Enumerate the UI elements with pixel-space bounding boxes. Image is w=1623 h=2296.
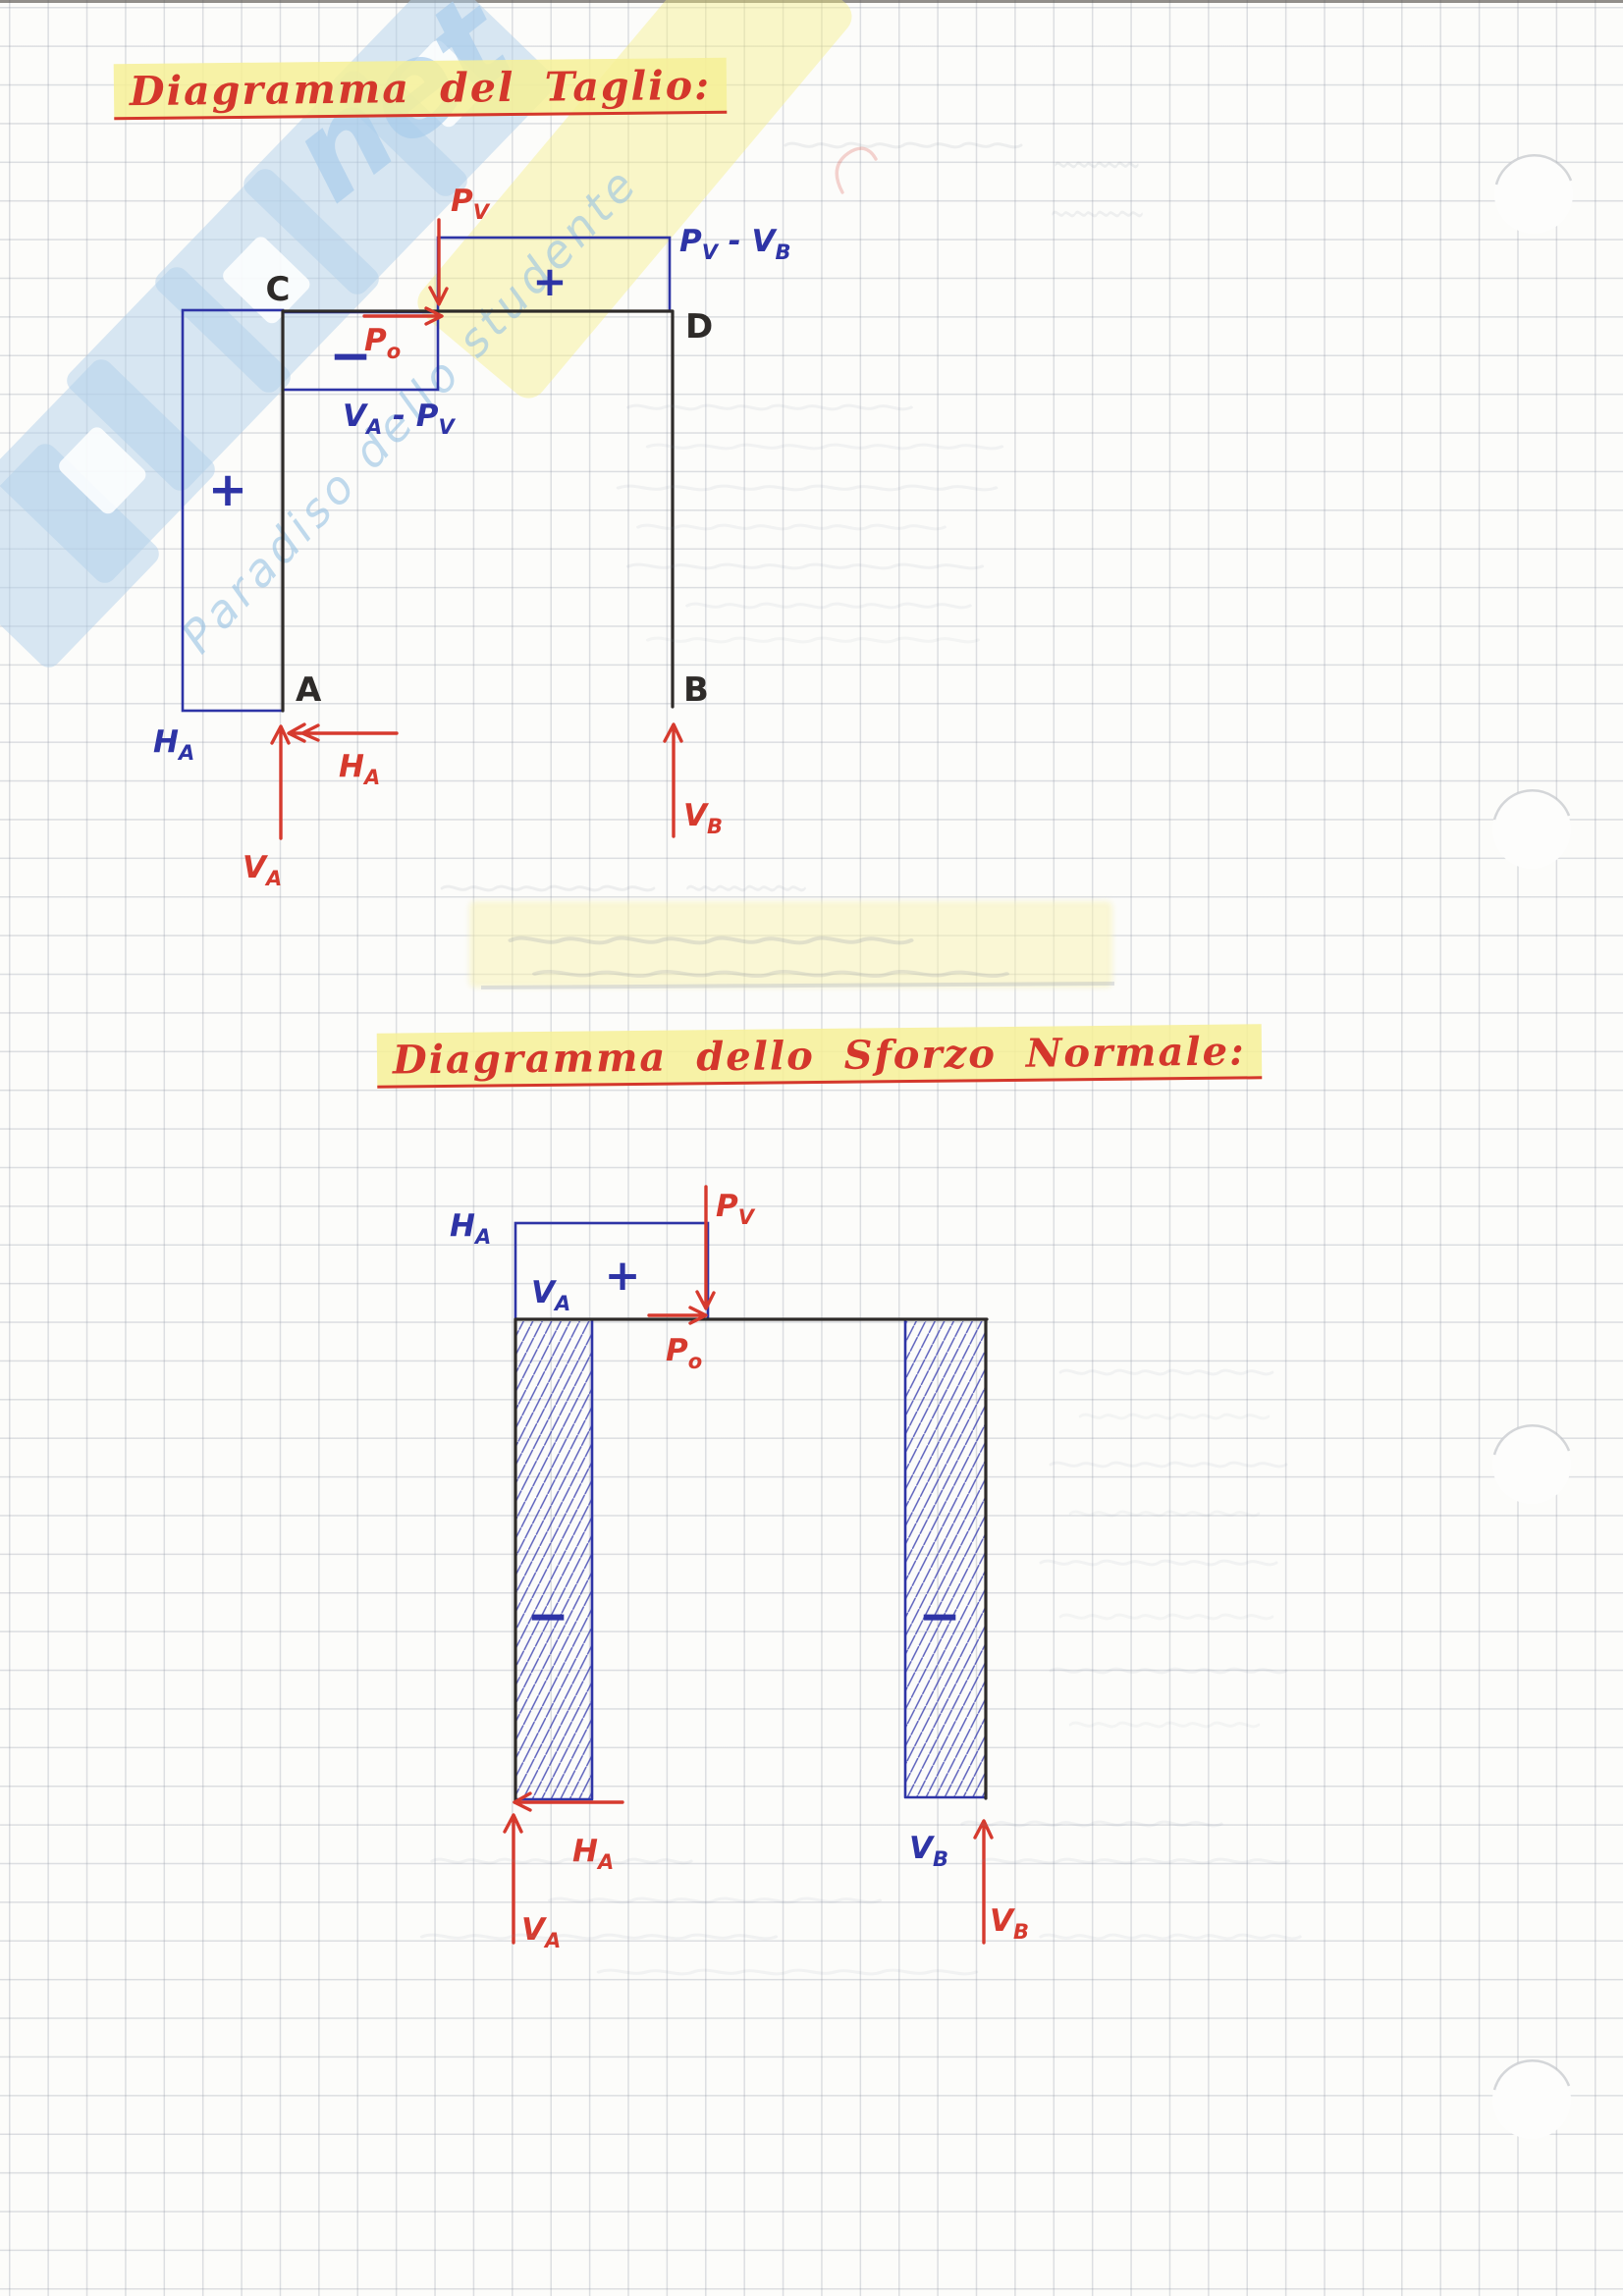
pv-label-2: PV	[716, 1189, 756, 1229]
shear-diagram: C D A B + − + PV Po HA	[153, 184, 790, 890]
punch-hole	[1494, 155, 1573, 234]
vb-reaction-label-2: VB	[990, 1903, 1029, 1944]
normal-force-diagram: + − − HA VA VB PV Po	[450, 1187, 1029, 1952]
shear-beam-negative-area	[283, 312, 438, 390]
vb-value-label: VB	[909, 1831, 948, 1871]
shear-beam-plus-sign: +	[532, 257, 567, 305]
ha-reaction-arrow-2	[514, 1793, 622, 1810]
ink-layer: C D A B + − + PV Po HA	[0, 0, 1623, 2296]
watermark-layer: net Paradiso dello studente	[0, 0, 1623, 2296]
node-c: C	[266, 270, 291, 309]
ha-support-label: HA	[153, 724, 194, 765]
node-b: B	[683, 670, 709, 710]
va-reaction-label-2: VA	[521, 1912, 561, 1952]
normal-left-column-area	[516, 1321, 591, 1798]
normal-left-minus-sign: −	[526, 1587, 569, 1646]
shear-diagram-title: Diagramma del Taglio:	[114, 58, 728, 121]
normal-beam-positive-area	[515, 1223, 708, 1319]
pv-minus-vb-label: PV - VB	[679, 224, 790, 264]
va-value-label: VA	[531, 1275, 570, 1315]
po-load-arrow-2	[649, 1308, 706, 1323]
va-reaction-label: VA	[243, 850, 282, 890]
watermark-tagline-script: Paradiso dello studente	[171, 155, 649, 663]
ha-reaction-arrow	[289, 724, 397, 741]
po-label: Po	[364, 323, 401, 363]
ha-reaction-label-2: HA	[572, 1834, 614, 1874]
va-reaction-arrow	[272, 726, 289, 838]
punch-hole	[1492, 790, 1571, 869]
frame-outline-2	[515, 1319, 987, 1800]
ha-reaction-label: HA	[339, 749, 380, 789]
punch-hole	[1492, 2060, 1571, 2139]
pv-load-arrow	[430, 220, 447, 304]
vb-reaction-arrow	[665, 724, 681, 836]
normal-right-minus-sign: −	[918, 1587, 961, 1646]
punch-hole	[1492, 1425, 1571, 1504]
normal-right-column-area	[906, 1321, 985, 1796]
vb-reaction-arrow-2	[975, 1821, 992, 1943]
punch-holes	[1492, 155, 1573, 2139]
po-load-arrow	[364, 308, 442, 324]
vb-reaction-label: VB	[683, 798, 723, 838]
po-label-2: Po	[666, 1333, 702, 1373]
frame-outline	[283, 311, 673, 711]
node-d: D	[685, 307, 713, 347]
ha-support-label-2: HA	[450, 1208, 491, 1249]
va-minus-pv-label: VA - PV	[343, 399, 456, 439]
pv-label: PV	[451, 184, 491, 224]
pv-load-arrow-2	[697, 1187, 714, 1308]
shear-beam-minus-sign: −	[329, 327, 372, 386]
va-reaction-arrow-2	[505, 1815, 521, 1943]
normal-beam-plus-sign: +	[605, 1251, 641, 1301]
scan-top-edge	[0, 0, 1623, 3]
notebook-page: net Paradiso dello studente Diagramma de…	[0, 0, 1623, 2296]
shear-left-column-area	[183, 310, 283, 711]
normal-diagram-edges	[515, 1320, 986, 1799]
shear-column-plus-sign: +	[208, 462, 247, 517]
bleed-through-highlight	[469, 901, 1112, 988]
shear-beam-positive-area	[438, 238, 670, 311]
node-a: A	[296, 670, 322, 710]
normal-force-diagram-title: Diagramma dello Sforzo Normale:	[377, 1024, 1262, 1088]
